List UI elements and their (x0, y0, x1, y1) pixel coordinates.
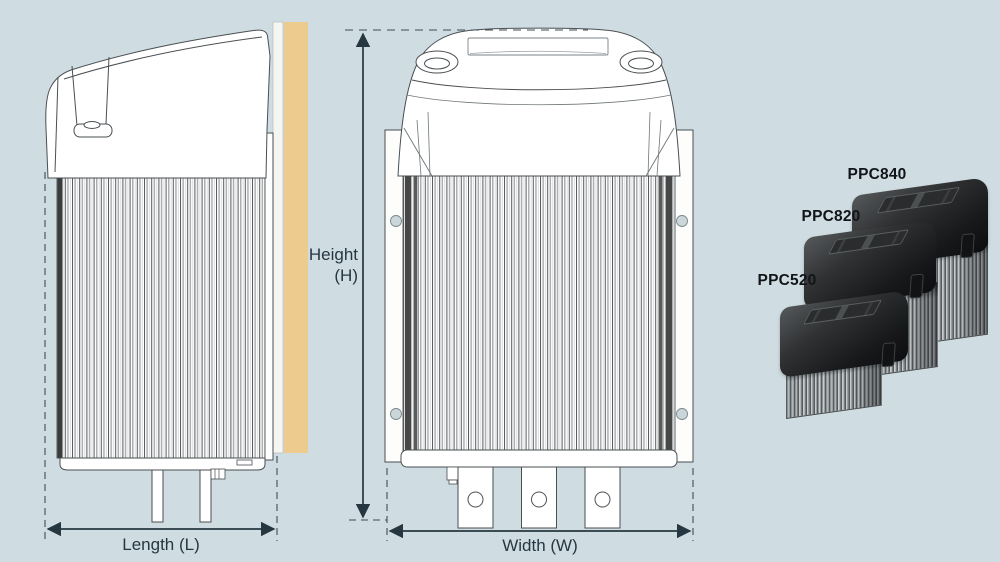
side-terminal-2 (200, 470, 211, 522)
dimension-diagram-page: Height (H) Length (L) Width (W) (0, 0, 1000, 562)
ppc820-label-plate (828, 229, 909, 255)
technical-drawing (0, 0, 730, 562)
product-label-ppc820: PPC820 (776, 208, 886, 226)
product-label-ppc840: PPC840 (822, 166, 932, 184)
side-grip-bump (84, 122, 100, 129)
side-heatsink-fins (57, 178, 265, 458)
width-dimension-label: Width (W) (440, 536, 640, 557)
height-label-line1: Height (266, 245, 358, 266)
front-terminal-1 (458, 467, 493, 528)
grip-hole-right (620, 51, 662, 73)
mounting-hole (391, 216, 402, 227)
side-heatsink-edge (58, 178, 63, 458)
front-heatsink-shadow-right (666, 169, 672, 462)
ppc820-corner-clip (909, 274, 924, 299)
height-label-line2: (H) (266, 266, 358, 287)
front-heatsink-shadow-right2 (659, 169, 662, 462)
mounting-hole (391, 409, 402, 420)
front-bracket-foot (449, 480, 457, 484)
wall-face (273, 22, 283, 453)
front-terminal-2 (522, 467, 557, 528)
front-base (401, 450, 677, 467)
ppc840-corner-clip (961, 234, 976, 259)
front-heatsink-shadow-left (405, 169, 411, 462)
front-view (385, 28, 693, 528)
product-label-ppc520: PPC520 (732, 272, 842, 290)
side-base (60, 458, 265, 470)
ppc520-cover (780, 290, 908, 378)
side-cover (46, 30, 270, 178)
side-terminal-1 (152, 470, 163, 522)
front-heatsink-shadow-left2 (414, 169, 417, 462)
ppc840-label-plate (876, 187, 960, 213)
side-connector-block (211, 469, 225, 479)
front-heatsink-fins (403, 169, 675, 462)
front-terminal-3 (585, 467, 620, 528)
height-dimension-label: Height (H) (266, 245, 358, 286)
ppc520-label-plate (803, 299, 882, 324)
grip-hole-left (416, 51, 458, 73)
length-dimension-label: Length (L) (61, 535, 261, 556)
side-base-detail (237, 460, 252, 465)
front-bracket (447, 467, 459, 480)
wall-panel (284, 22, 308, 453)
mounting-hole (677, 409, 688, 420)
ppc520-corner-clip (881, 342, 896, 367)
mounting-hole (677, 216, 688, 227)
